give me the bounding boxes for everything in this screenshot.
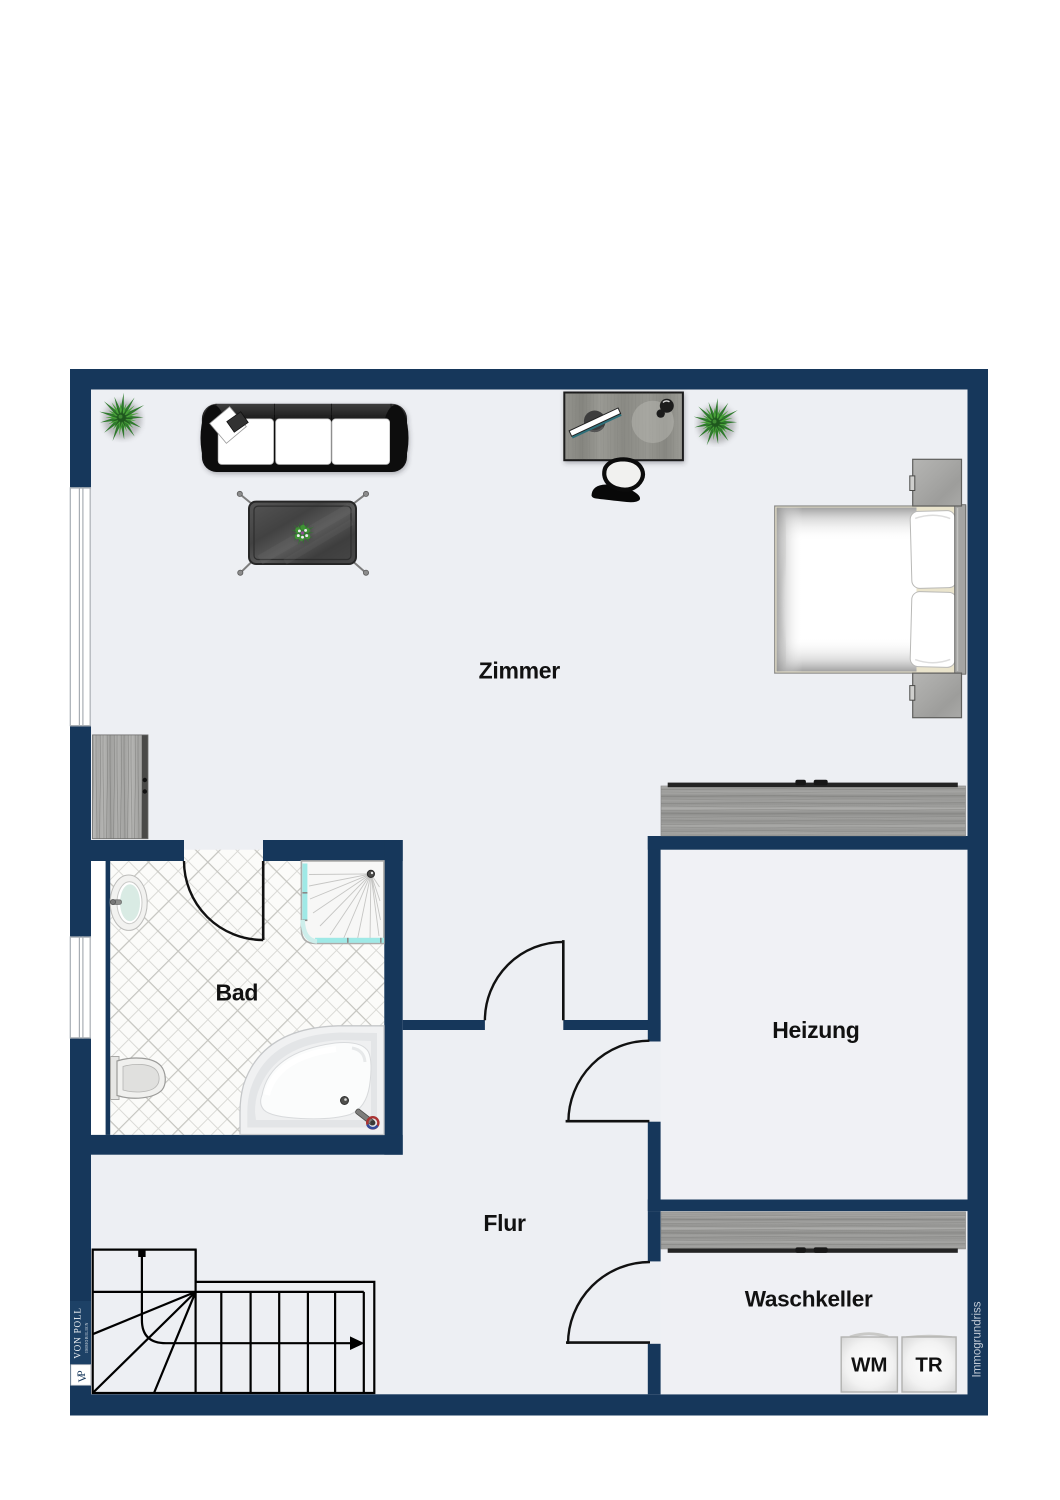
svg-text:Immogrundriss: Immogrundriss xyxy=(972,1301,984,1377)
svg-text:P: P xyxy=(76,1370,88,1376)
svg-text:Flur: Flur xyxy=(483,1210,526,1236)
svg-text:Zimmer: Zimmer xyxy=(479,657,561,683)
svg-text:WM: WM xyxy=(851,1354,887,1377)
svg-text:TR: TR xyxy=(915,1354,943,1377)
svg-text:VON POLL: VON POLL xyxy=(73,1307,83,1359)
svg-text:IMMOBILIEN: IMMOBILIEN xyxy=(85,1322,89,1353)
svg-text:Waschkeller: Waschkeller xyxy=(745,1287,873,1312)
svg-text:Bad: Bad xyxy=(216,980,259,1006)
svg-text:Heizung: Heizung xyxy=(772,1017,859,1043)
